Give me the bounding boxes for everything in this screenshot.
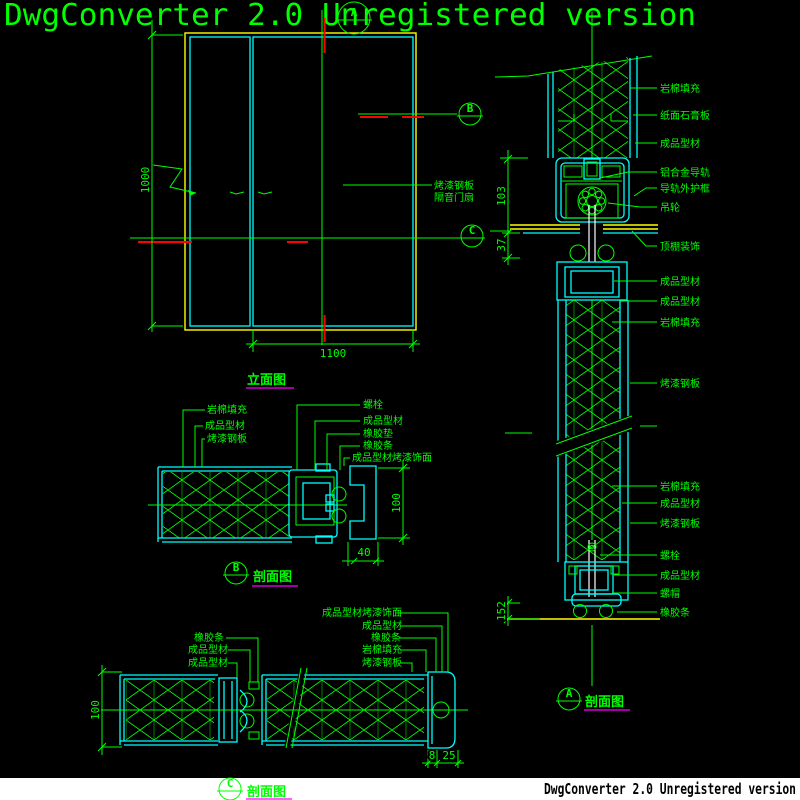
callout-label: 螺栓: [660, 549, 680, 562]
callout-label: 成品型材: [205, 419, 245, 432]
dim-c-100: 100: [89, 700, 102, 720]
callout-label: 成品型材烤漆饰面: [322, 606, 402, 619]
callout-label: 成品型材: [660, 569, 700, 582]
callout-label: 成品型材: [660, 137, 700, 150]
svg-text:A: A: [566, 687, 573, 700]
callout-label: 成品型材: [660, 497, 700, 510]
cad-viewport: DwgConverter 2.0 Unregistered version 10…: [0, 0, 800, 800]
callout-label: 橡胶条: [371, 631, 401, 644]
wall-rockwool-hatch: [558, 57, 628, 158]
callout-label: 岩棉填充: [362, 643, 402, 656]
callout-label: 岩棉填充: [660, 82, 700, 95]
callout-label: 导轨外护框: [660, 182, 710, 195]
dim-1100: 1100: [320, 347, 347, 360]
callout-label: 成品型材: [363, 414, 403, 427]
watermark-bottom: DwgConverter 2.0 Unregistered version: [544, 780, 796, 798]
callout-label: 顶棚装饰: [660, 240, 700, 253]
callout-label: 岩棉填充: [660, 480, 700, 493]
callout-label: 烤漆钢板: [660, 377, 700, 390]
dim-1000: 1000: [139, 167, 152, 194]
elevation-title: 立面图: [247, 372, 286, 388]
callout-label: 橡胶条: [660, 606, 690, 619]
svg-text:B: B: [233, 561, 240, 574]
svg-text:B: B: [467, 102, 474, 115]
svg-text:C: C: [469, 224, 476, 237]
section-a-title: 剖面图: [585, 694, 624, 710]
callout-label: 橡胶条: [194, 631, 224, 644]
callout-label: 成品型材: [188, 643, 228, 656]
callout-label: 烤漆钢板: [362, 656, 402, 669]
note-line2: 隔音门扇: [434, 191, 474, 204]
callout-label: 成品型材: [362, 619, 402, 632]
callout-label: 橡胶垫: [363, 427, 393, 440]
note-line1: 烤漆钢板: [434, 179, 474, 192]
callout-label: 岩棉填充: [660, 316, 700, 329]
callout-label: 铝合金导轨: [660, 166, 710, 179]
cad-canvas: DwgConverter 2.0 Unregistered version 10…: [0, 0, 800, 800]
section-c-title: 剖面图: [247, 784, 286, 800]
callout-label: 烤漆钢板: [207, 432, 247, 445]
callout-label: 螺栓: [363, 398, 383, 411]
svg-text:A: A: [351, 6, 358, 19]
svg-text:C: C: [227, 777, 234, 790]
callout-label: 成品型材: [660, 275, 700, 288]
dim-c-8: 8: [429, 749, 436, 762]
dim-103: 103: [495, 186, 508, 206]
dim-b-40: 40: [357, 546, 370, 559]
callout-label: 纸面石膏板: [660, 109, 710, 122]
callout-label: 橡胶条: [363, 439, 393, 452]
callout-label: 岩棉填充: [207, 403, 247, 416]
dim-152: 152: [495, 601, 508, 621]
callout-label: 螺帽: [660, 587, 680, 600]
callout-label: 烤漆钢板: [660, 517, 700, 530]
callout-label: 吊轮: [660, 201, 680, 214]
callout-label: 成品型材: [660, 295, 700, 308]
dim-c-25: 25: [442, 749, 455, 762]
section-b-title: 剖面图: [253, 569, 292, 585]
callout-label: 成品型材烤漆饰面: [352, 451, 432, 464]
dim-37: 37: [495, 238, 508, 251]
dim-b-100: 100: [390, 493, 403, 513]
callout-label: 成品型材: [188, 656, 228, 669]
